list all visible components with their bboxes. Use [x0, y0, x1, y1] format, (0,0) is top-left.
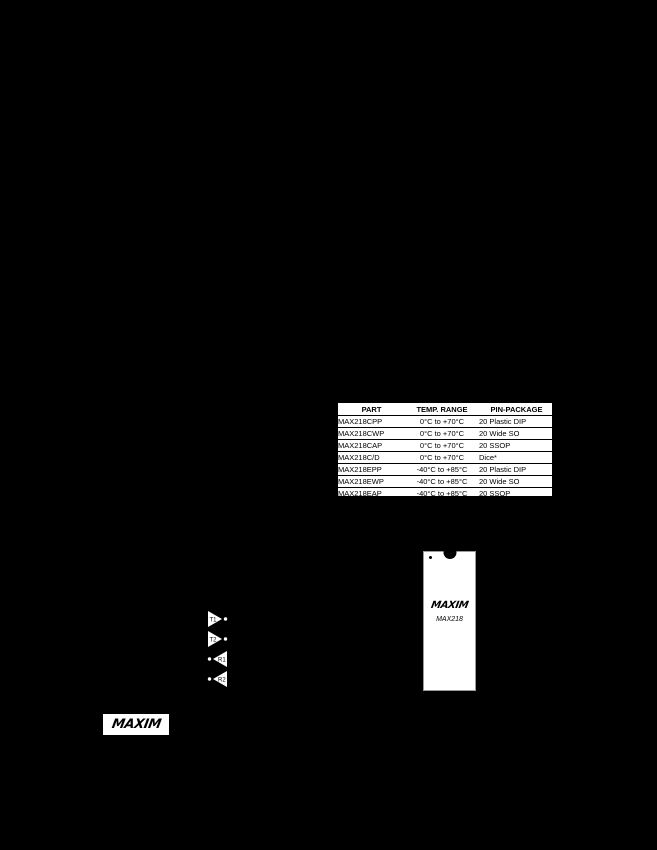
package-notch-icon: [443, 546, 456, 559]
table-row: MAX218EWP -40°C to +85°C 20 Wide SO: [338, 476, 554, 488]
buffer-label: R1: [218, 657, 226, 663]
buffer-label: T1: [210, 617, 218, 623]
maxim-logo: MAXIM: [430, 601, 469, 611]
transmitter-buffer-t1-icon: T1: [204, 610, 232, 628]
pin1-indicator-dot: [429, 556, 432, 559]
buffer-output-dot: [224, 637, 227, 640]
pin-package-cell: 20 Plastic DIP: [479, 464, 554, 476]
pin-package-cell: 20 Wide SO: [479, 476, 554, 488]
part-cell: MAX218EPP: [338, 464, 405, 476]
temp-range-cell: 0°C to +70°C: [405, 452, 479, 464]
buffer-label: T2: [210, 637, 218, 643]
chip-part-number: MAX218: [424, 615, 475, 624]
part-cell: MAX218CAP: [338, 440, 405, 452]
table-row: MAX218EAP -40°C to +85°C 20 SSOP: [338, 488, 554, 500]
pin-package-cell: 20 Plastic DIP: [479, 416, 554, 428]
temp-range-cell: 0°C to +70°C: [405, 440, 479, 452]
receiver-buffer-r2-icon: R2: [204, 670, 232, 688]
receiver-buffer-r1-icon: R1: [204, 650, 232, 668]
pin-package-column-header: PIN-PACKAGE: [479, 403, 554, 416]
part-cell: MAX218EAP: [338, 488, 405, 500]
table-row: MAX218CWP 0°C to +70°C 20 Wide SO: [338, 428, 554, 440]
part-cell: MAX218CPP: [338, 416, 405, 428]
footer-maxim-logo: MAXIM: [103, 714, 169, 735]
buffer-output-dot: [224, 617, 227, 620]
temp-range-cell: -40°C to +85°C: [405, 476, 479, 488]
maxim-logo: MAXIM: [110, 718, 161, 731]
buffer-output-dot: [208, 677, 211, 680]
part-column-header: PART: [338, 403, 405, 416]
buffer-label: R2: [218, 677, 226, 683]
part-cell: MAX218C/D: [338, 452, 405, 464]
table-row: MAX218CPP 0°C to +70°C 20 Plastic DIP: [338, 416, 554, 428]
temp-range-cell: -40°C to +85°C: [405, 488, 479, 500]
datasheet-page: PART TEMP. RANGE PIN-PACKAGE MAX218CPP 0…: [0, 0, 657, 850]
chip-branding: MAXIM MAX218: [424, 595, 475, 624]
part-cell: MAX218EWP: [338, 476, 405, 488]
temp-range-cell: -40°C to +85°C: [405, 464, 479, 476]
table-row: MAX218CAP 0°C to +70°C 20 SSOP: [338, 440, 554, 452]
table-row: MAX218EPP -40°C to +85°C 20 Plastic DIP: [338, 464, 554, 476]
pin-package-cell: Dice*: [479, 452, 554, 464]
transmitter-buffer-t2-icon: T2: [204, 630, 232, 648]
part-cell: MAX218CWP: [338, 428, 405, 440]
dip-package-diagram: MAXIM MAX218: [423, 551, 476, 691]
table-row: MAX218C/D 0°C to +70°C Dice*: [338, 452, 554, 464]
pin-package-cell: 20 SSOP: [479, 440, 554, 452]
buffer-symbol-stack: T1 T2 R1 R2: [204, 610, 232, 688]
table-header-row: PART TEMP. RANGE PIN-PACKAGE: [338, 403, 554, 416]
temp-range-column-header: TEMP. RANGE: [405, 403, 479, 416]
temp-range-cell: 0°C to +70°C: [405, 428, 479, 440]
ordering-information-table: PART TEMP. RANGE PIN-PACKAGE MAX218CPP 0…: [337, 401, 553, 498]
buffer-output-dot: [208, 657, 211, 660]
temp-range-cell: 0°C to +70°C: [405, 416, 479, 428]
pin-package-cell: 20 Wide SO: [479, 428, 554, 440]
pin-package-cell: 20 SSOP: [479, 488, 554, 500]
